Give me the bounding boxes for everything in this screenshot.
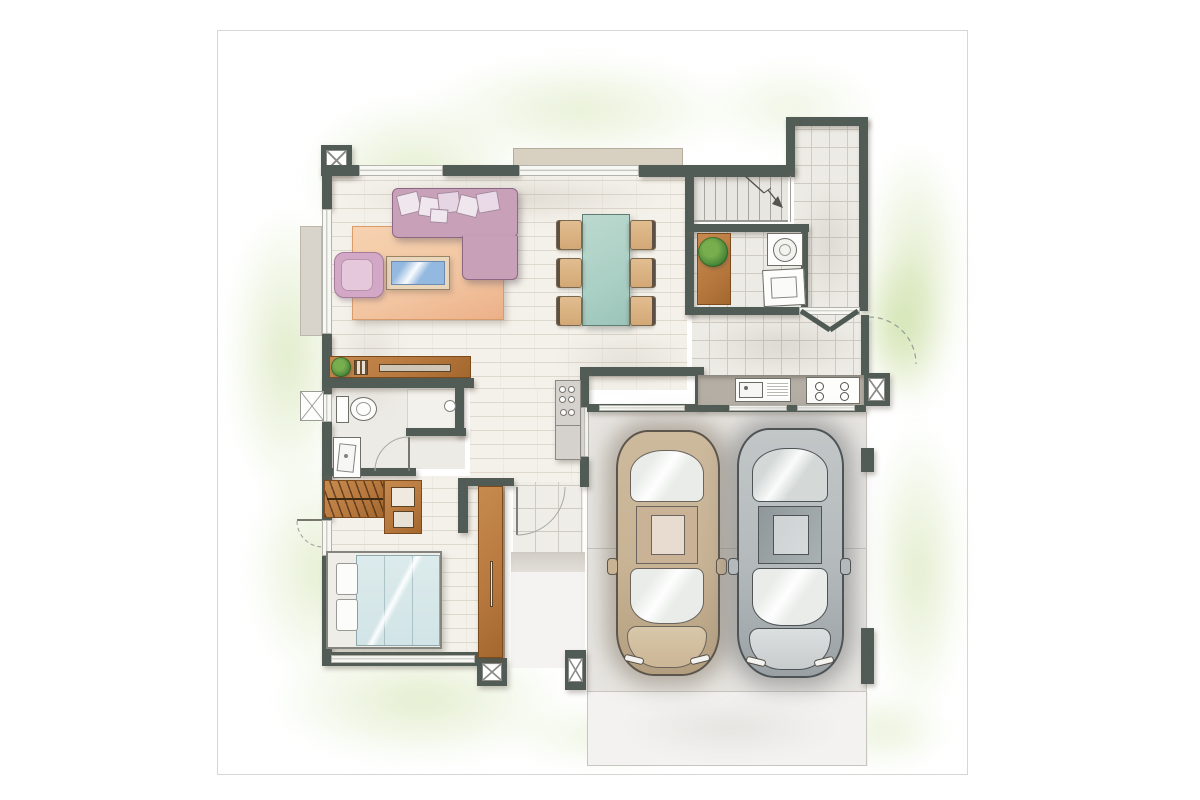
staircase-treads [694, 176, 788, 222]
wall-segment [786, 117, 795, 173]
floor-wash [700, 318, 865, 373]
window [519, 165, 639, 176]
porch-floor [513, 482, 583, 554]
car-sunroof [773, 515, 809, 555]
vanity-sink [333, 437, 361, 478]
slab-joint [587, 765, 867, 766]
wall-segment [859, 117, 868, 311]
rack-circle-icon [568, 409, 575, 416]
dresser [384, 480, 422, 534]
glass-top [391, 261, 445, 285]
porch-step [511, 552, 585, 572]
wall-segment [466, 478, 514, 486]
column-x-icon [568, 658, 583, 682]
washer-drum-inner [779, 244, 791, 256]
sliding-door-track [503, 486, 505, 658]
wall-segment [406, 428, 466, 436]
window [322, 209, 332, 334]
car-roof [758, 506, 822, 564]
shower-control [444, 400, 456, 412]
closet-hanging-clothes [324, 480, 384, 518]
rack-circle-icon [568, 386, 575, 393]
burner-icon [815, 382, 824, 391]
wall-segment [685, 176, 694, 315]
car-rear-window [752, 448, 828, 502]
washing-machine [767, 233, 803, 266]
drainboard [767, 382, 788, 398]
car-windshield [630, 568, 704, 624]
column-x-icon [482, 663, 502, 681]
books [354, 360, 368, 375]
wall-segment [786, 117, 868, 126]
floor-wash [620, 695, 840, 760]
car-mirror [607, 558, 618, 575]
wall-segment [685, 307, 799, 315]
burner-icon [815, 392, 824, 401]
wall-segment [321, 165, 359, 176]
rack-circle-icon [559, 386, 566, 393]
kitchen-sink [735, 378, 791, 402]
car-windshield [752, 568, 828, 626]
car-mirror [716, 558, 727, 575]
burner-icon [840, 392, 849, 401]
wall-segment [458, 478, 468, 533]
wall-segment [639, 165, 795, 177]
dresser-drawer [393, 511, 414, 528]
wall-stub [861, 448, 874, 472]
dresser-drawer [391, 487, 415, 507]
throw-pillow [475, 190, 500, 214]
dining-chair [630, 296, 656, 326]
potted-plant [331, 357, 351, 377]
closet-rod [327, 498, 383, 500]
dryer-lid [770, 276, 797, 298]
rack-circle-icon [568, 396, 575, 403]
dining-chair [630, 220, 656, 250]
dining-table [582, 214, 630, 326]
sink-bowl [337, 443, 357, 473]
car-gray [737, 428, 844, 678]
throw-pillow [430, 208, 449, 223]
cabinet-divider [556, 425, 580, 426]
dining-chair [556, 220, 582, 250]
front-door-post [565, 650, 586, 690]
wall-segment [685, 224, 809, 232]
coffee-table [386, 256, 450, 290]
wall-stub [861, 628, 874, 684]
sink-drain [744, 386, 748, 390]
green-wash [868, 420, 968, 720]
wall-segment [861, 315, 869, 377]
bed-pillow [336, 599, 358, 631]
window [331, 655, 475, 663]
window [580, 407, 589, 457]
wall-segment [580, 457, 589, 487]
sofa-chaise [462, 236, 518, 280]
bed-frame [326, 551, 442, 649]
dining-chair [556, 296, 582, 326]
car-mirror [840, 558, 851, 575]
toilet-seat [356, 402, 371, 416]
armchair-cushion [341, 259, 373, 291]
car-roof [636, 506, 698, 564]
car-tan [616, 430, 720, 676]
cooktop [806, 377, 860, 404]
entry-door-threshold [799, 307, 860, 315]
toilet-bowl [350, 397, 377, 421]
sliding-wood-door [478, 486, 503, 658]
sink-drain [344, 454, 348, 458]
burner-icon [840, 382, 849, 391]
window [729, 405, 787, 411]
rack-circle-icon [560, 409, 567, 416]
potted-plant [698, 237, 728, 267]
wall-segment [587, 367, 699, 376]
car-mirror [728, 558, 739, 575]
column [863, 373, 890, 406]
side-terrace-strip [300, 226, 322, 336]
rack-circle-icon [559, 396, 566, 403]
shelf-tray [379, 364, 451, 372]
stair-edge [790, 176, 791, 222]
window [797, 405, 855, 411]
bed-pillow [336, 563, 358, 595]
toilet-tank [336, 396, 349, 423]
stair-rail [694, 220, 788, 222]
wall-segment [322, 378, 474, 388]
wall-segment [443, 165, 519, 176]
dryer [762, 268, 806, 307]
car-sunroof [651, 515, 685, 555]
window [359, 165, 443, 176]
column [477, 658, 507, 686]
armchair [334, 252, 384, 298]
floor-plan-canvas [0, 0, 1200, 800]
wall-segment [322, 422, 332, 470]
tall-cabinet-fridge [555, 380, 581, 460]
window [599, 405, 685, 411]
slab-joint [587, 691, 867, 692]
column-x-icon [868, 378, 885, 401]
back-door-panel [300, 391, 324, 421]
bed-duvet [356, 555, 440, 646]
dining-chair [630, 258, 656, 288]
wall-segment [322, 176, 332, 209]
door-handle [490, 561, 493, 607]
dining-chair [556, 258, 582, 288]
sink-basin [739, 382, 763, 398]
car-rear-window [630, 450, 704, 502]
wall-segment [580, 367, 589, 407]
